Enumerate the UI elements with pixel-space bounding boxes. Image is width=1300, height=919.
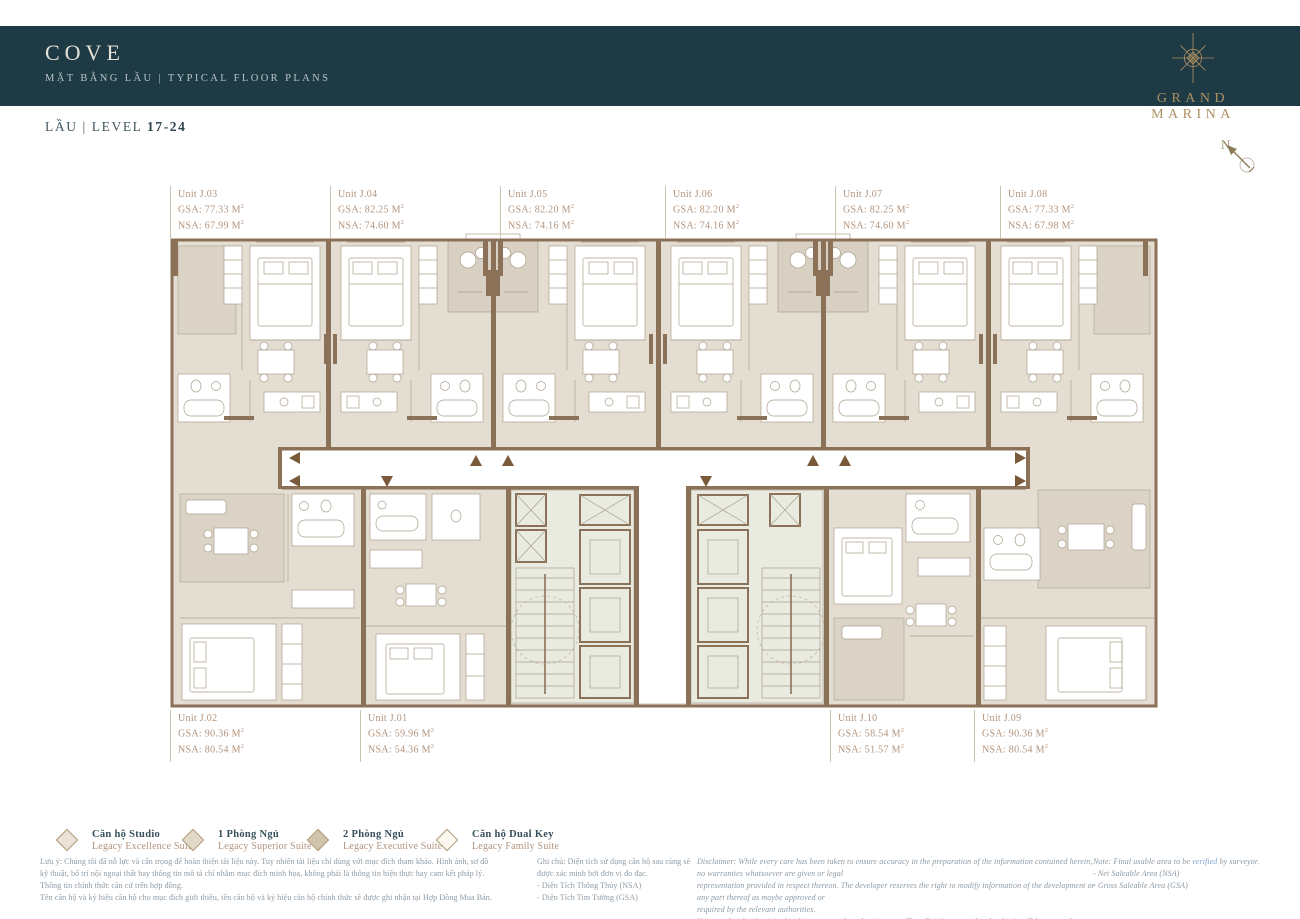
level-title: LẦU | LEVEL 17-24: [45, 119, 187, 135]
legend-diamond-icon: [178, 825, 208, 855]
page-title: COVE: [45, 40, 330, 66]
unit-label-j08: Unit J.08GSA: 77.33 M2NSA: 67.98 M2: [1000, 186, 1074, 238]
unit-label-j07: Unit J.07GSA: 82.25 M2NSA: 74.60 M2: [835, 186, 909, 238]
page: COVE MẶT BẰNG LẦU | TYPICAL FLOOR PLANS …: [0, 0, 1300, 919]
legend-item-1: 1 Phòng NgủLegacy Superior Suite: [178, 822, 312, 858]
unit-label-j02: Unit J.02GSA: 90.36 M2NSA: 80.54 M2: [170, 710, 244, 762]
header-bar: COVE MẶT BẰNG LẦU | TYPICAL FLOOR PLANS …: [0, 26, 1300, 106]
unit-label-j09: Unit J.09GSA: 90.36 M2NSA: 80.54 M2: [974, 710, 1048, 762]
brand-name: GRAND MARINA: [1118, 91, 1268, 123]
unit-label-j04: Unit J.04GSA: 82.25 M2NSA: 74.60 M2: [330, 186, 404, 238]
unit-label-j01: Unit J.01GSA: 59.96 M2NSA: 54.36 M2: [360, 710, 434, 762]
unit-label-j05: Unit J.05GSA: 82.20 M2NSA: 74.16 M2: [500, 186, 574, 238]
legend-diamond-icon: [52, 825, 82, 855]
compass-logo-icon: [1166, 32, 1220, 84]
floor-plan: [170, 228, 1160, 710]
legend-diamond-icon: [432, 825, 462, 855]
page-subtitle: MẶT BẰNG LẦU | TYPICAL FLOOR PLANS: [45, 73, 330, 84]
legend-diamond-icon: [303, 825, 333, 855]
footer-note-en: Note: Final usable area to be verified b…: [1093, 856, 1295, 892]
legend-item-3: Căn hộ Dual KeyLegacy Family Suite: [432, 822, 559, 858]
footer-ghichu: Ghi chú: Diện tích sử dụng căn hộ sau cù…: [537, 856, 695, 904]
north-arrow-icon: N: [1216, 132, 1262, 178]
unit-label-j03: Unit J.03GSA: 77.33 M2NSA: 67.99 M2: [170, 186, 244, 238]
footer-note-highlight: verified: [1192, 857, 1217, 866]
legend-item-0: Căn hộ StudioLegacy Excellence Suite: [52, 822, 195, 858]
footer-disclaimer: Disclaimer: While every care has been ta…: [697, 856, 1095, 919]
legend-item-2: 2 Phòng NgủLegacy Executive Suite: [303, 822, 442, 858]
unit-label-j10: Unit J.10GSA: 58.54 M2NSA: 51.57 M2: [830, 710, 904, 762]
unit-label-j06: Unit J.06GSA: 82.20 M2NSA: 74.16 M2: [665, 186, 739, 238]
footer-note-vi: Lưu ý: Chúng tôi đã nỗ lực và cẩn trọng …: [40, 856, 532, 904]
brand-logo: GRAND MARINA: [1118, 32, 1268, 123]
